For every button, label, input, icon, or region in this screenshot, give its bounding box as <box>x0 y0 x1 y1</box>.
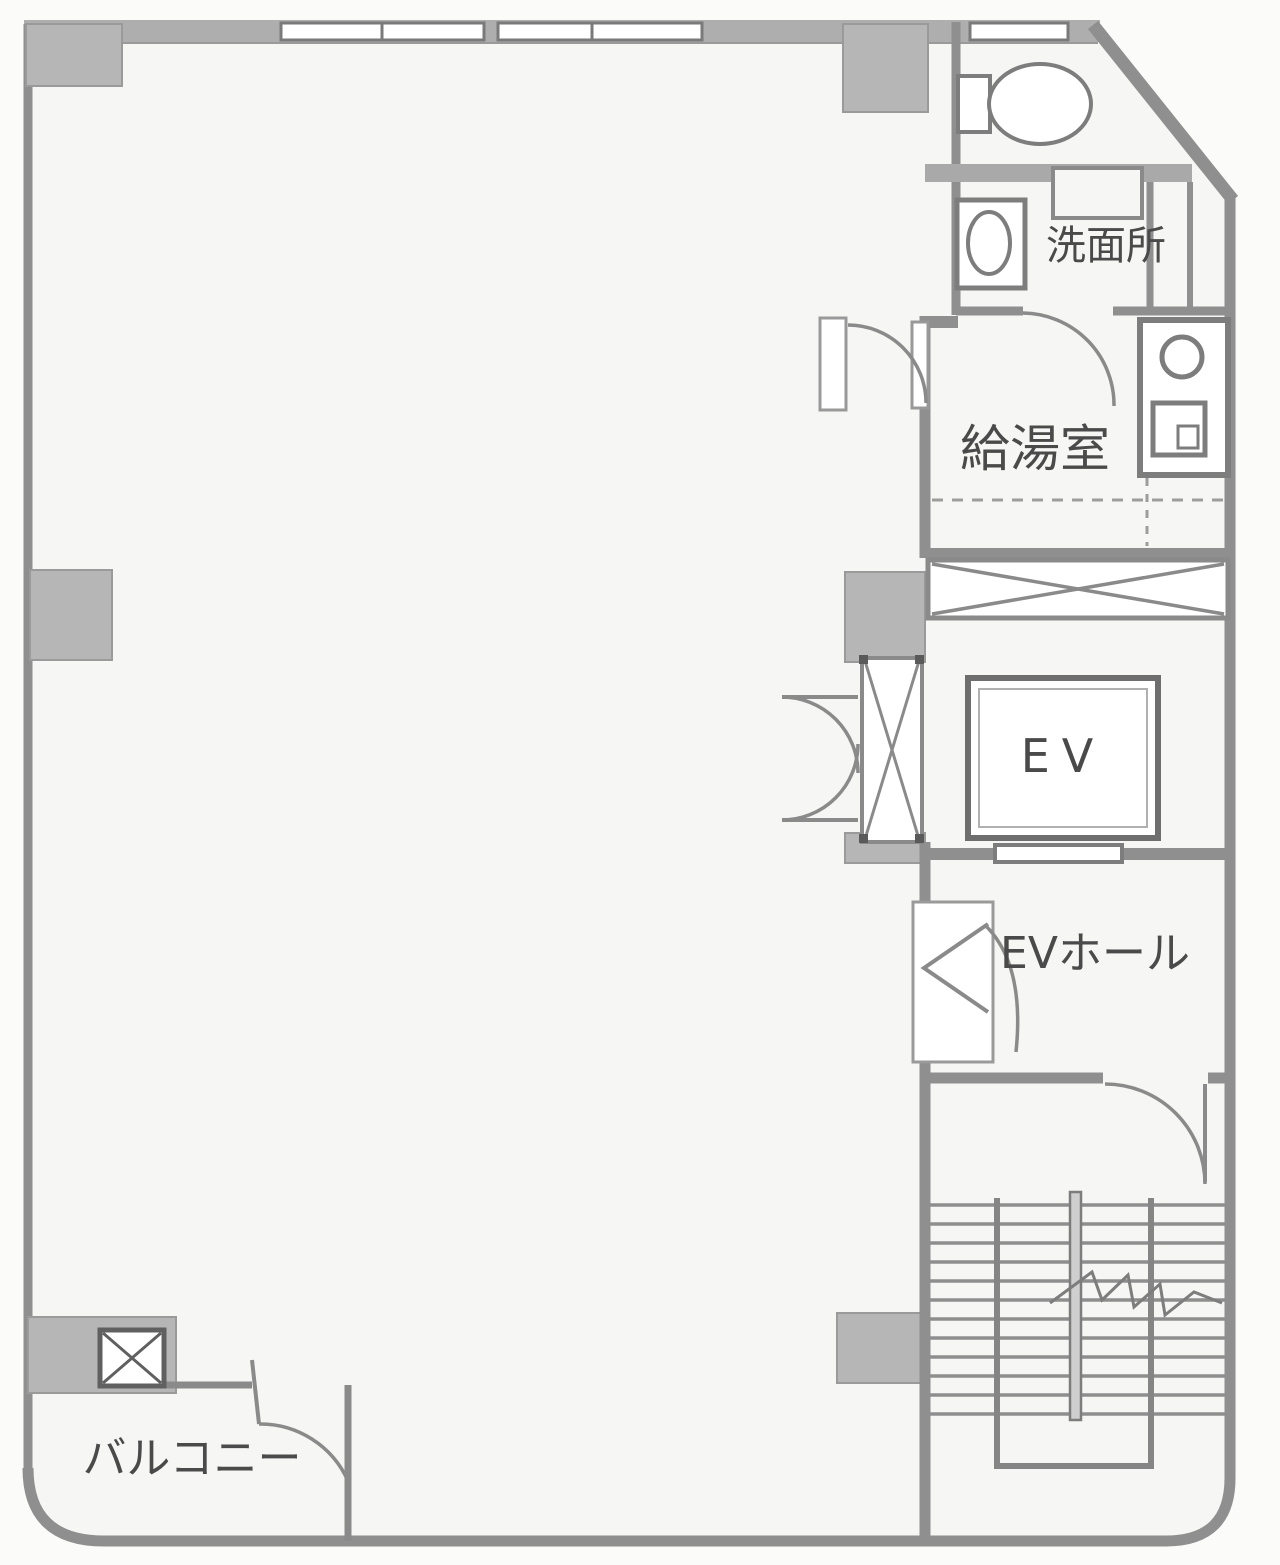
column-top-right <box>843 24 928 112</box>
elevator-hall-label: EVホール <box>1000 928 1190 979</box>
washroom-label: 洗面所 <box>1046 223 1166 269</box>
elevator-cab-door <box>995 845 1122 862</box>
shaft-corner-mark <box>859 834 868 843</box>
elevator-label: EV <box>1021 729 1106 783</box>
balcony-label: バルコニー <box>82 1433 301 1484</box>
shaft-corner-mark <box>859 655 868 664</box>
toilet-tank <box>958 76 990 132</box>
shaft-corner-mark <box>915 834 924 843</box>
toilet-room <box>958 64 1091 144</box>
washroom-counter <box>1053 168 1142 218</box>
column-top-left <box>26 24 122 86</box>
window-toilet <box>970 23 1068 40</box>
column-mid-left <box>30 570 112 660</box>
floor-plan-drawing: 洗面所 給湯室 EV <box>0 0 1280 1565</box>
window-2 <box>498 23 702 40</box>
stair-center-rail <box>1070 1192 1081 1420</box>
corridor-door-jamb <box>820 318 846 410</box>
toilet-bowl <box>989 64 1091 144</box>
shaft-corner-mark <box>915 655 924 664</box>
column-lower-right <box>837 1313 928 1383</box>
kitchenette-label: 給湯室 <box>960 420 1110 478</box>
pipe-shaft <box>928 560 1228 618</box>
kitchen-sink <box>1162 337 1202 377</box>
hall-door-frame <box>913 902 993 1062</box>
column-mid-right <box>845 572 925 662</box>
floor-plan-page: 洗面所 給湯室 EV <box>0 0 1280 1565</box>
